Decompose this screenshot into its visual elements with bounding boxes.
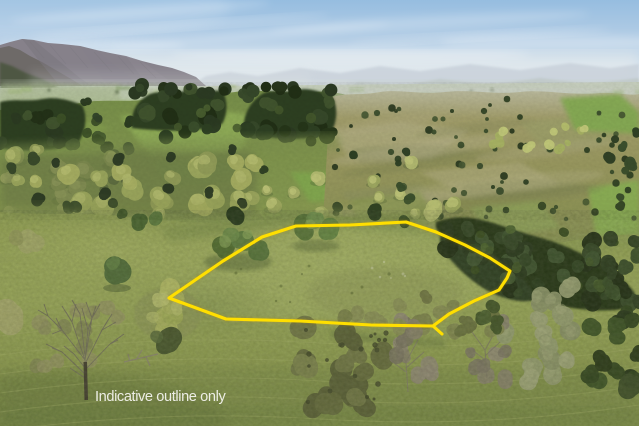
- svg-text:Indicative outline only: Indicative outline only: [95, 389, 226, 405]
